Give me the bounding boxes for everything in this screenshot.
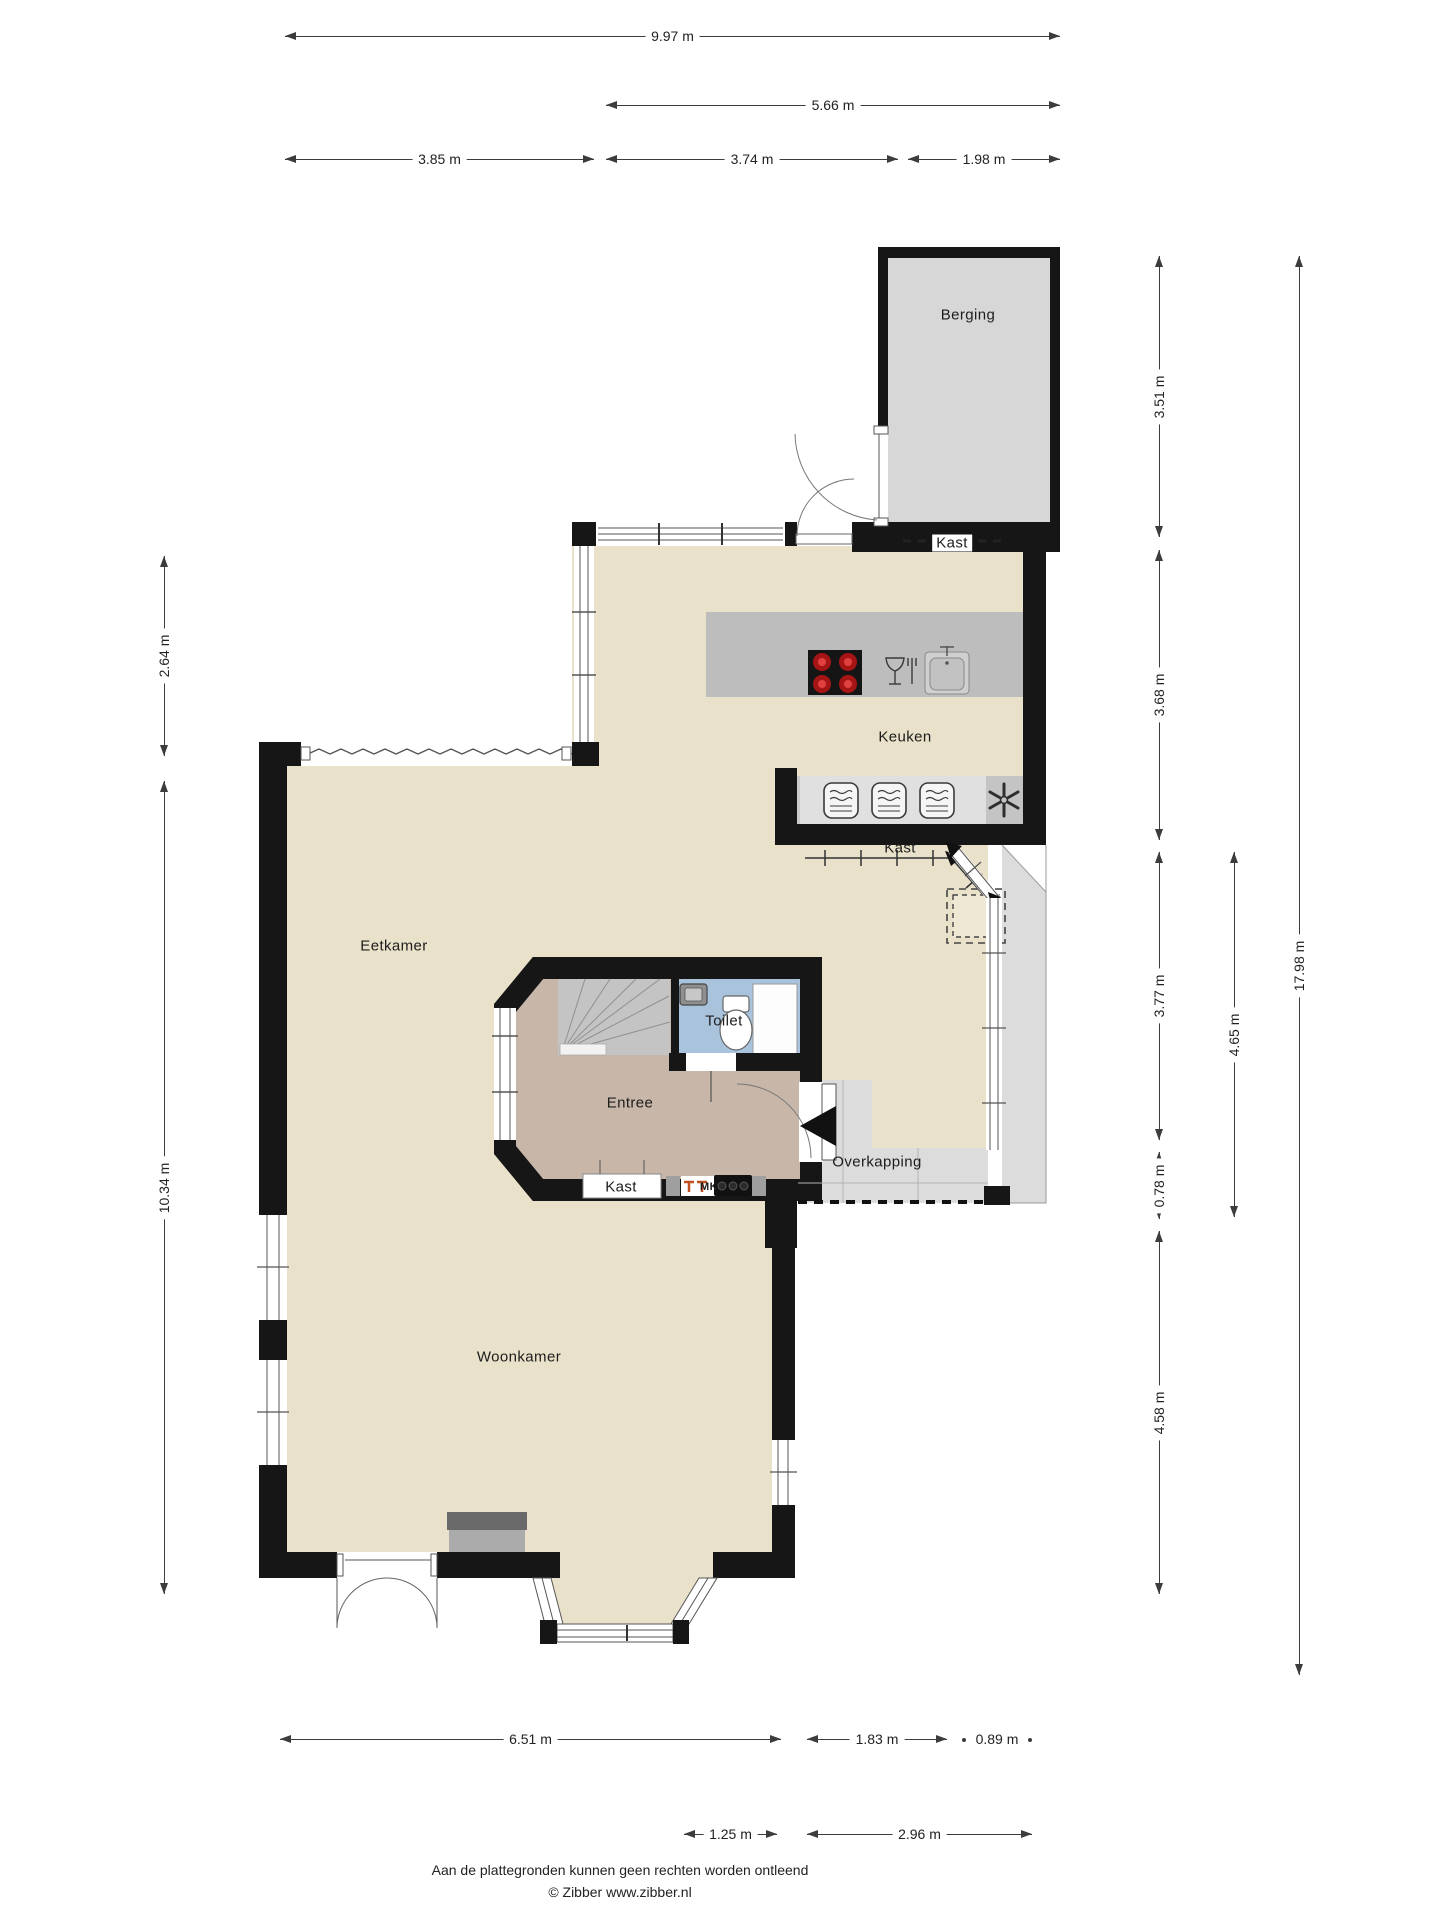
dimension-label: 2.96 m: [892, 1826, 947, 1842]
dimension-label: 3.74 m: [725, 151, 780, 167]
floorplan-canvas: BergingKeukenKastKastEetkamerToiletEntre…: [0, 0, 1440, 1920]
dimension-line: 1.98 m: [908, 153, 1060, 167]
dimension-line: 0.78 m: [1153, 1152, 1167, 1219]
cooktop-icon: [808, 650, 862, 695]
woonkamer-left-window-1: [257, 1215, 289, 1320]
woonkamer-right-window: [770, 1440, 797, 1505]
dimension-label: 1.83 m: [850, 1731, 905, 1747]
dimension-label: 3.51 m: [1151, 369, 1167, 424]
eetkamer-wavy-window: [301, 742, 572, 766]
extractor-fan-icon: [986, 776, 1023, 824]
room-label-overkapping: Overkapping: [832, 1154, 921, 1171]
dimension-label: 0.78 m: [1151, 1158, 1167, 1213]
berging-door: [795, 426, 888, 526]
dimension-line: 9.97 m: [285, 30, 1060, 44]
keuken-left-window: [572, 546, 596, 742]
hand-basin-icon: [680, 984, 707, 1005]
entree-window: [492, 1008, 518, 1140]
dimension-line: 3.85 m: [285, 153, 594, 167]
stairs-icon: [558, 979, 670, 1055]
dimension-line: 0.89 m: [962, 1733, 1032, 1747]
berging-door-swing-arc: [795, 434, 877, 520]
dimension-label: 2.64 m: [156, 629, 172, 684]
footer-copyright: © Zibber www.zibber.nl: [0, 1884, 1240, 1900]
french-doors: [337, 1552, 437, 1628]
room-label-woonkamer: Woonkamer: [477, 1349, 561, 1366]
room-label-kast-keuken: Kast: [932, 535, 972, 552]
dimension-line: 10.34 m: [158, 781, 172, 1594]
dimension-label: 3.68 m: [1151, 668, 1167, 723]
dimension-label: 4.65 m: [1226, 1007, 1242, 1062]
boiler-appliance-icon: [714, 1175, 752, 1196]
dimension-line: 4.65 m: [1228, 852, 1242, 1217]
room-label-meterkast: MK: [700, 1181, 718, 1193]
dimension-line: 3.68 m: [1153, 550, 1167, 840]
dimension-label: 5.66 m: [806, 97, 861, 113]
dimension-line: 3.74 m: [606, 153, 898, 167]
dimension-line: 4.58 m: [1153, 1231, 1167, 1594]
dimension-label: 4.58 m: [1151, 1385, 1167, 1440]
sink-icon: [925, 646, 969, 694]
dimension-line: 3.77 m: [1153, 852, 1167, 1140]
dimension-line: 1.25 m: [684, 1828, 777, 1842]
keuken-top-window: [596, 522, 785, 546]
footer-disclaimer: Aan de plattegronden kunnen geen rechten…: [0, 1862, 1240, 1878]
dimension-label: 3.85 m: [412, 151, 467, 167]
room-label-toilet: Toilet: [705, 1013, 742, 1030]
dimension-label: 3.77 m: [1151, 969, 1167, 1024]
dimension-line: 17.98 m: [1293, 256, 1307, 1675]
room-label-eetkamer: Eetkamer: [360, 938, 427, 955]
woonkamer-left-window-2: [257, 1360, 289, 1465]
dimension-label: 10.34 m: [156, 1156, 172, 1219]
room-label-berging: Berging: [941, 307, 996, 324]
dimension-label: 1.98 m: [957, 151, 1012, 167]
dimension-line: 5.66 m: [606, 99, 1060, 113]
room-label-kast-entree: Kast: [605, 1179, 637, 1196]
dimension-label: 1.25 m: [703, 1826, 758, 1842]
room-label-entree: Entree: [607, 1095, 654, 1112]
room-label-kast-hal: Kast: [884, 840, 916, 857]
floorplan-linework: [0, 0, 1440, 1920]
dimension-label: 6.51 m: [503, 1731, 558, 1747]
dimension-line: 2.96 m: [807, 1828, 1032, 1842]
dishwasher-icon: [886, 658, 916, 684]
room-label-keuken: Keuken: [878, 729, 931, 746]
hal-east-window: [982, 898, 1010, 1205]
dimension-line: 1.83 m: [807, 1733, 947, 1747]
dimension-line: 2.64 m: [158, 556, 172, 756]
dimension-label: 0.89 m: [970, 1731, 1025, 1747]
dimension-line: 3.51 m: [1153, 256, 1167, 537]
dimension-label: 17.98 m: [1291, 934, 1307, 997]
dimension-line: 6.51 m: [280, 1733, 781, 1747]
dimension-label: 9.97 m: [645, 28, 700, 44]
